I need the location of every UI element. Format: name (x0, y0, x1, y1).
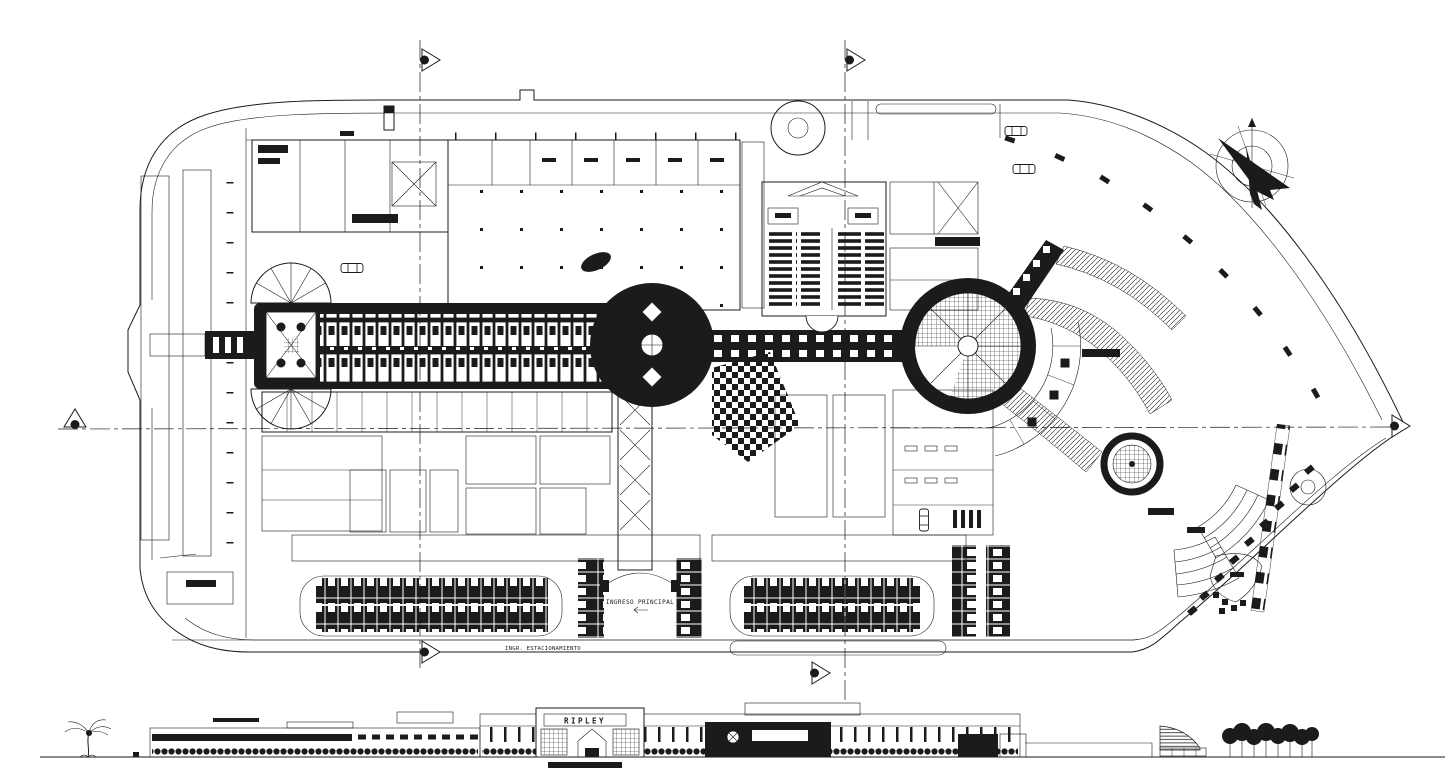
car (920, 509, 929, 531)
round-plaza-small (1104, 436, 1160, 492)
north-compass-icon (1210, 118, 1294, 210)
anchor-store (448, 136, 764, 310)
palm-tree-icon (65, 720, 111, 757)
section-marker (64, 409, 86, 429)
cinema-block (762, 182, 886, 332)
ripley-storefront: RIPLEY (536, 708, 644, 757)
drawing-sheet: INGRESO PRINCIPAL INGR. ESTACIONAMIENTO … (0, 0, 1448, 783)
parking-left (141, 170, 230, 556)
section-marker (1390, 415, 1410, 437)
section-marker (420, 49, 440, 71)
amphitheater (1174, 485, 1269, 597)
main-entrance-label: INGRESO PRINCIPAL (606, 599, 674, 606)
car (341, 264, 363, 273)
parking-entrance-label: INGR. ESTACIONAMIENTO (505, 646, 581, 652)
car (1005, 127, 1027, 136)
section-marker (845, 49, 865, 71)
round-plaza-west (590, 283, 714, 407)
store-sign-text: RIPLEY (564, 717, 606, 726)
elevation-trees (1222, 723, 1319, 757)
car (1013, 165, 1035, 174)
round-plaza-east (900, 240, 1064, 414)
link-corridor (706, 330, 902, 362)
section-marker (420, 641, 440, 663)
parking-south (292, 535, 1010, 638)
section-marker (810, 662, 830, 684)
service-yard (252, 140, 448, 232)
elevation-strip: RIPLEY (40, 703, 1445, 768)
